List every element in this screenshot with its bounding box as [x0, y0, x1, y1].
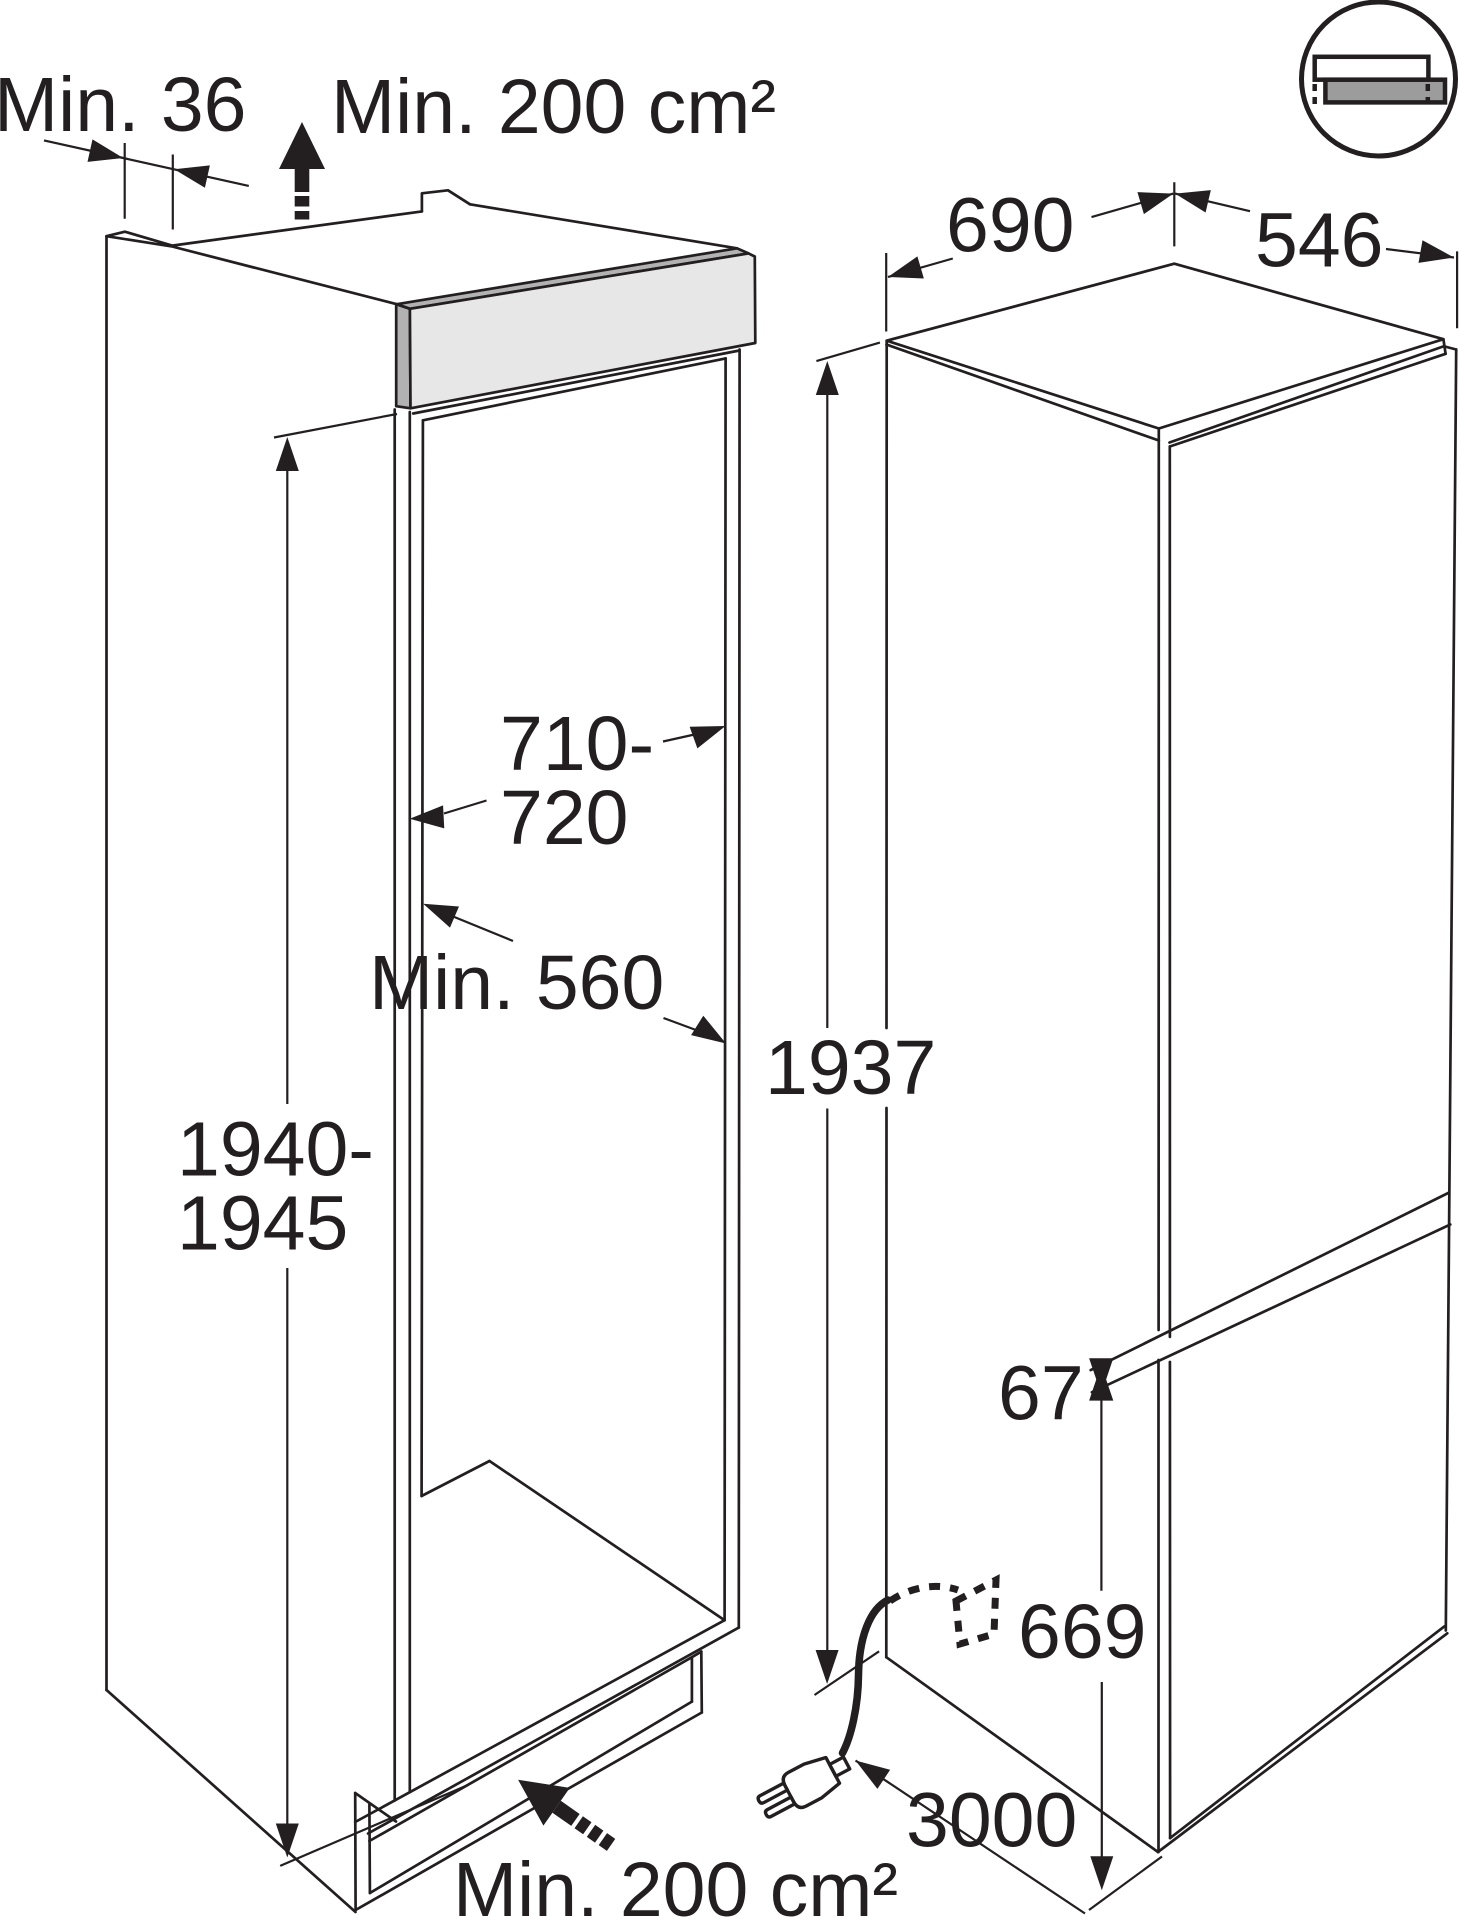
svg-text:669: 669 [1018, 1589, 1146, 1675]
svg-text:Min. 560: Min. 560 [369, 940, 664, 1026]
svg-text:67: 67 [998, 1351, 1084, 1437]
svg-text:546: 546 [1255, 198, 1383, 284]
svg-text:3000: 3000 [906, 1778, 1077, 1864]
svg-text:690: 690 [946, 183, 1074, 269]
svg-text:Min. 200 cm²: Min. 200 cm² [331, 64, 776, 150]
svg-text:720: 720 [500, 775, 628, 861]
svg-text:1937: 1937 [765, 1025, 936, 1111]
svg-text:Min. 200 cm²: Min. 200 cm² [453, 1847, 898, 1920]
svg-text:1945: 1945 [177, 1181, 348, 1267]
svg-text:Min. 36: Min. 36 [0, 62, 247, 148]
